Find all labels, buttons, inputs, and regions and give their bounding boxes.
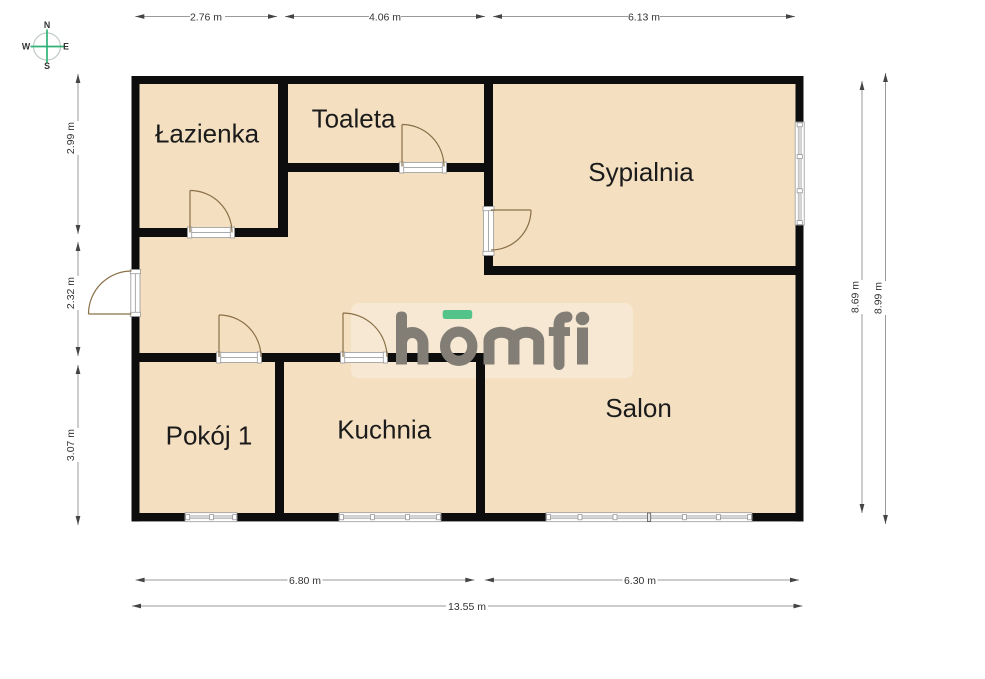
svg-text:2.99 m: 2.99 m xyxy=(65,122,77,154)
svg-text:2.32 m: 2.32 m xyxy=(65,277,77,309)
svg-text:N: N xyxy=(44,20,50,30)
svg-text:6.80 m: 6.80 m xyxy=(289,575,321,587)
svg-text:4.06 m: 4.06 m xyxy=(369,12,401,24)
svg-text:8.99 m: 8.99 m xyxy=(873,282,885,314)
svg-text:2.76 m: 2.76 m xyxy=(190,12,222,24)
svg-text:13.55 m: 13.55 m xyxy=(448,601,486,613)
svg-text:E: E xyxy=(63,42,69,52)
svg-text:Sypialnia: Sypialnia xyxy=(588,157,694,187)
svg-text:Pokój 1: Pokój 1 xyxy=(166,421,253,451)
svg-text:6.30 m: 6.30 m xyxy=(624,575,656,587)
svg-text:S: S xyxy=(44,61,50,71)
svg-text:W: W xyxy=(22,42,31,52)
svg-text:Łazienka: Łazienka xyxy=(155,119,260,149)
svg-text:6.13 m: 6.13 m xyxy=(628,12,660,24)
svg-text:8.69 m: 8.69 m xyxy=(849,281,861,313)
svg-text:Salon: Salon xyxy=(605,393,672,423)
svg-text:Kuchnia: Kuchnia xyxy=(337,415,431,445)
svg-text:Toaleta: Toaleta xyxy=(312,104,396,134)
svg-text:3.07 m: 3.07 m xyxy=(65,429,77,461)
